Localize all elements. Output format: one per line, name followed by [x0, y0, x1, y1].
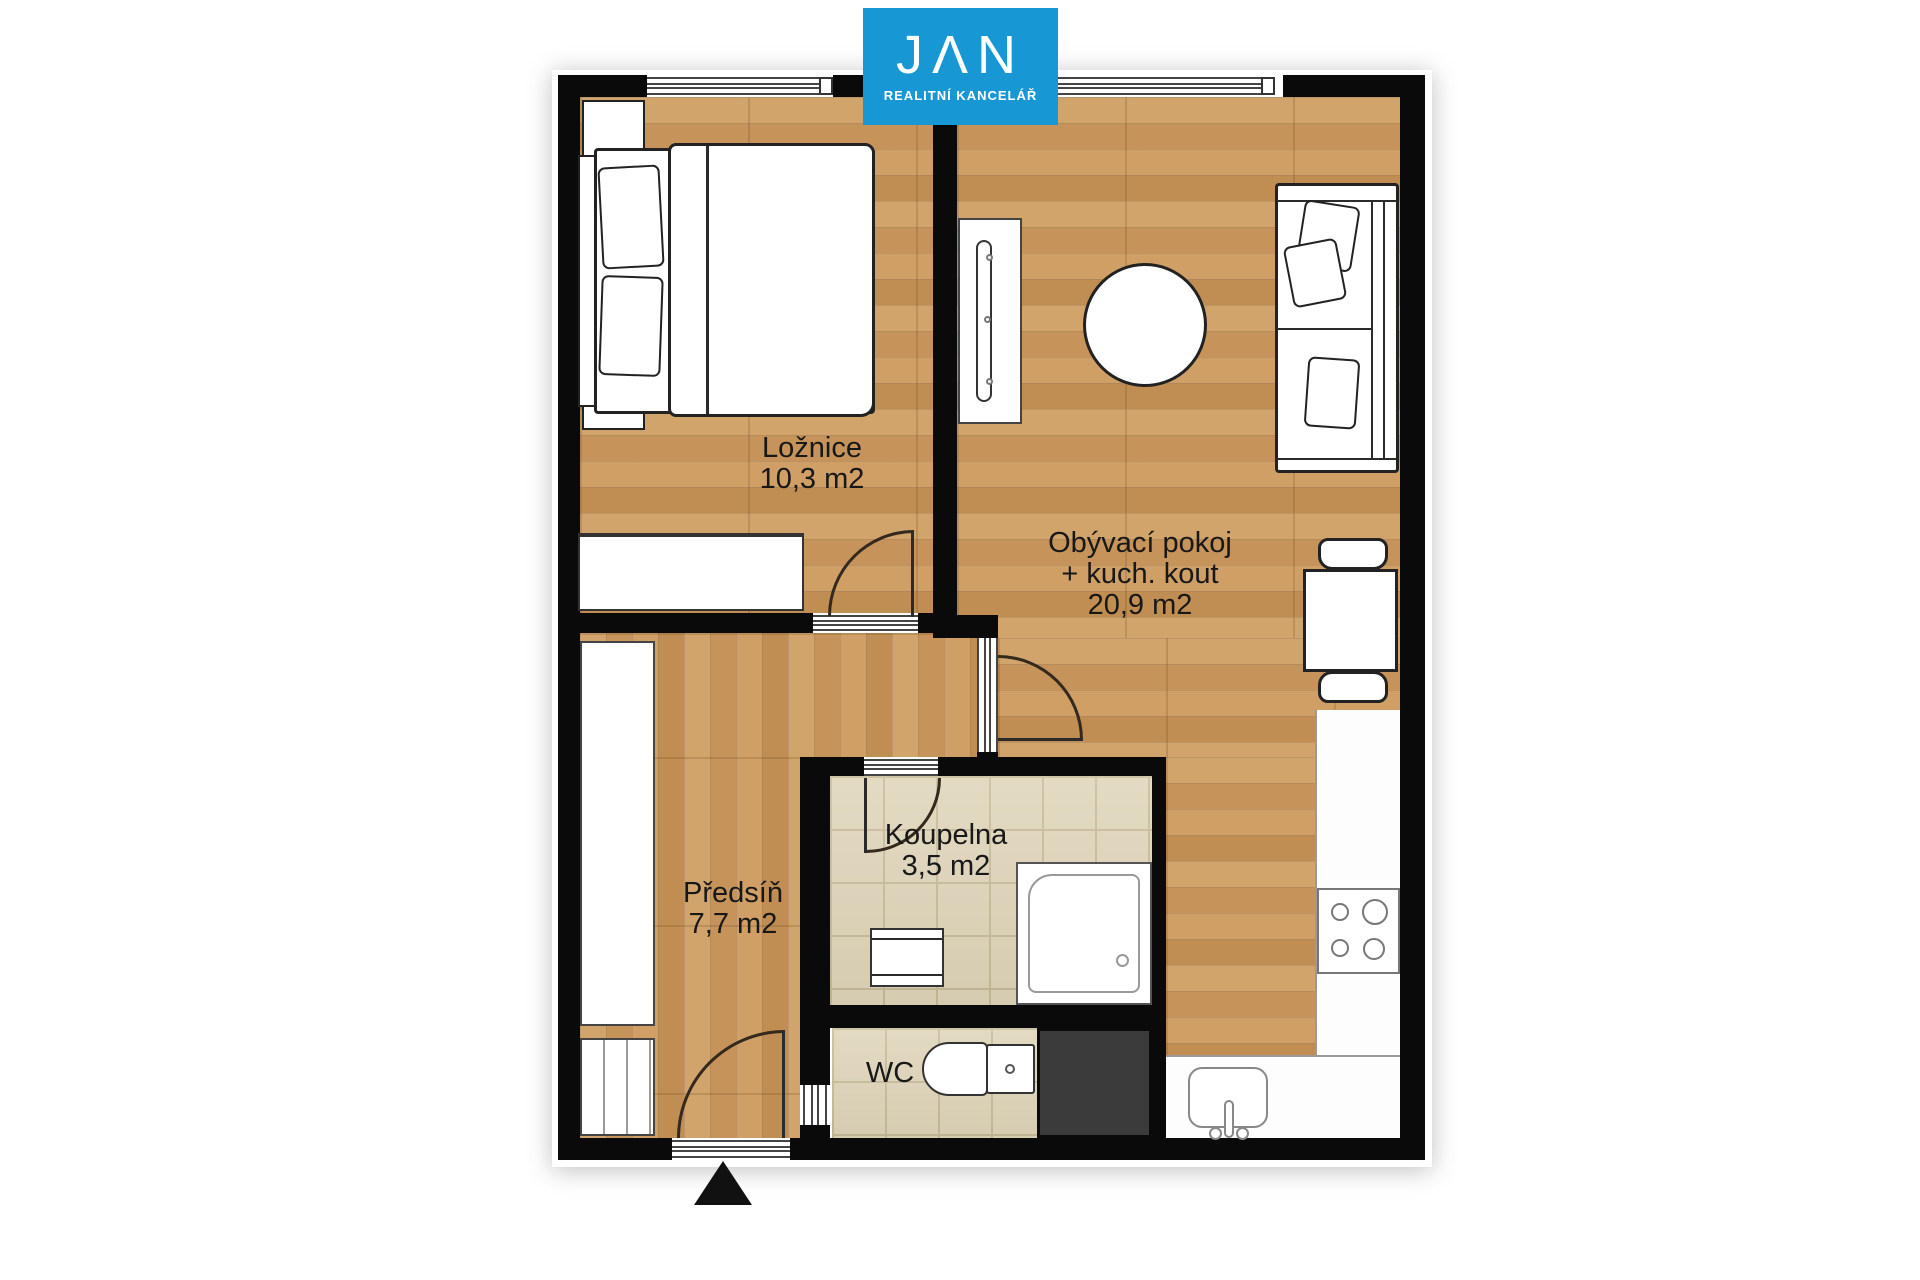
bottom-wall: [790, 1138, 1425, 1160]
sofa-pillow: [1304, 356, 1361, 429]
sofa-backrest-line: [1371, 201, 1373, 459]
toilet-flush-button: [1005, 1064, 1015, 1074]
bathroom-top-wall: [938, 757, 1155, 776]
stove-burner: [1362, 899, 1388, 925]
sofa-pillow: [1283, 237, 1348, 308]
top-wall: [833, 75, 865, 97]
dining-table: [1303, 569, 1398, 672]
living-room-door-leaf: [998, 738, 1083, 741]
sofa-backrest-line: [1383, 201, 1385, 459]
room-area: 10,3 m2: [760, 464, 865, 495]
bedroom-hall-wall: [918, 613, 933, 633]
bathroom-right-wall: [1152, 757, 1166, 1138]
stove-burner: [1331, 939, 1349, 957]
bathroom-top-wall: [830, 757, 864, 776]
bathroom-left-wall: [800, 757, 830, 1085]
entrance-door-leaf: [782, 1030, 785, 1138]
hall-living-wall: [933, 615, 998, 638]
entrance-door-sill: [672, 1140, 790, 1158]
living-room-window: [1058, 77, 1273, 95]
shower-tray: [1028, 874, 1140, 993]
room-label-bedroom: Ložnice 10,3 m2: [760, 433, 865, 495]
bed-duvet-fold: [706, 146, 709, 414]
washing-machine: [870, 928, 944, 987]
washing-machine-line: [872, 974, 942, 976]
room-name: Předsíň: [683, 878, 783, 909]
stove-burner: [1331, 903, 1349, 921]
room-name: + kuch. kout: [1048, 559, 1232, 590]
agency-logo: JΛN REALITNÍ KANCELÁŘ: [863, 8, 1058, 125]
bed-pillow: [598, 275, 663, 377]
round-rug: [1083, 263, 1207, 387]
dining-chair: [1318, 538, 1388, 570]
room-name: Obývací pokoj: [1048, 528, 1232, 559]
logo-wordmark: JΛN: [863, 28, 1058, 82]
stove: [1317, 888, 1400, 974]
entrance-arrow-icon: [694, 1161, 752, 1205]
bathroom-left-wall: [800, 1125, 830, 1138]
sink-faucet: [1224, 1100, 1234, 1138]
bathroom-wc-divider-wall: [830, 1005, 1152, 1028]
bathroom-door-leaf: [864, 778, 867, 853]
right-wall: [1400, 75, 1425, 1160]
logo-subtitle: REALITNÍ KANCELÁŘ: [863, 88, 1058, 103]
room-label-hall: Předsíň 7,7 m2: [683, 878, 783, 940]
room-name: WC: [866, 1058, 914, 1089]
utility-shaft: [1037, 1028, 1152, 1138]
floor-plan: Ložnice 10,3 m2 Obývací pokoj + kuch. ko…: [0, 0, 1920, 1280]
sofa-armrest-line: [1277, 458, 1397, 460]
bedroom-door-sill: [813, 615, 918, 631]
bed-pillow: [597, 164, 664, 269]
bedroom-wardrobe: [578, 533, 804, 611]
room-label-wc: WC: [866, 1058, 914, 1089]
washing-machine-line: [872, 938, 942, 940]
faucet-handle: [1209, 1127, 1222, 1140]
faucet-handle: [1236, 1127, 1249, 1140]
bed-duvet: [668, 143, 875, 417]
room-area: 7,7 m2: [683, 909, 783, 940]
room-name: Koupelna: [885, 820, 1008, 851]
room-label-living: Obývací pokoj + kuch. kout 20,9 m2: [1048, 528, 1232, 621]
tv-mount-dot: [984, 316, 991, 323]
hallway-wardrobe: [580, 641, 655, 1026]
hallway-shoe-cabinet: [580, 1038, 655, 1136]
bathroom-door-sill: [864, 759, 938, 776]
tv-mount-dot: [986, 254, 993, 261]
shower-drain: [1116, 954, 1129, 967]
toilet-bowl: [922, 1042, 988, 1096]
living-room-door-sill: [977, 638, 998, 752]
bed-headboard: [578, 155, 596, 407]
living-room-window-frame: [1261, 77, 1275, 95]
sofa-seat-split: [1277, 328, 1372, 330]
room-name: Ložnice: [760, 433, 865, 464]
bedroom-window-frame: [819, 77, 833, 95]
room-area: 3,5 m2: [885, 851, 1008, 882]
wc-door-sill: [803, 1085, 827, 1125]
room-area: 20,9 m2: [1048, 590, 1232, 621]
sofa-armrest-line: [1277, 200, 1397, 202]
stove-burner: [1363, 938, 1385, 960]
bedroom-door-leaf: [911, 531, 914, 617]
bedroom-hall-wall: [558, 613, 813, 633]
dining-chair: [1318, 671, 1388, 703]
bedroom-living-wall: [933, 97, 957, 638]
tv-mount-dot: [986, 378, 993, 385]
room-label-bathroom: Koupelna 3,5 m2: [885, 820, 1008, 882]
bedroom-window: [647, 77, 833, 95]
bottom-wall: [558, 1138, 672, 1160]
